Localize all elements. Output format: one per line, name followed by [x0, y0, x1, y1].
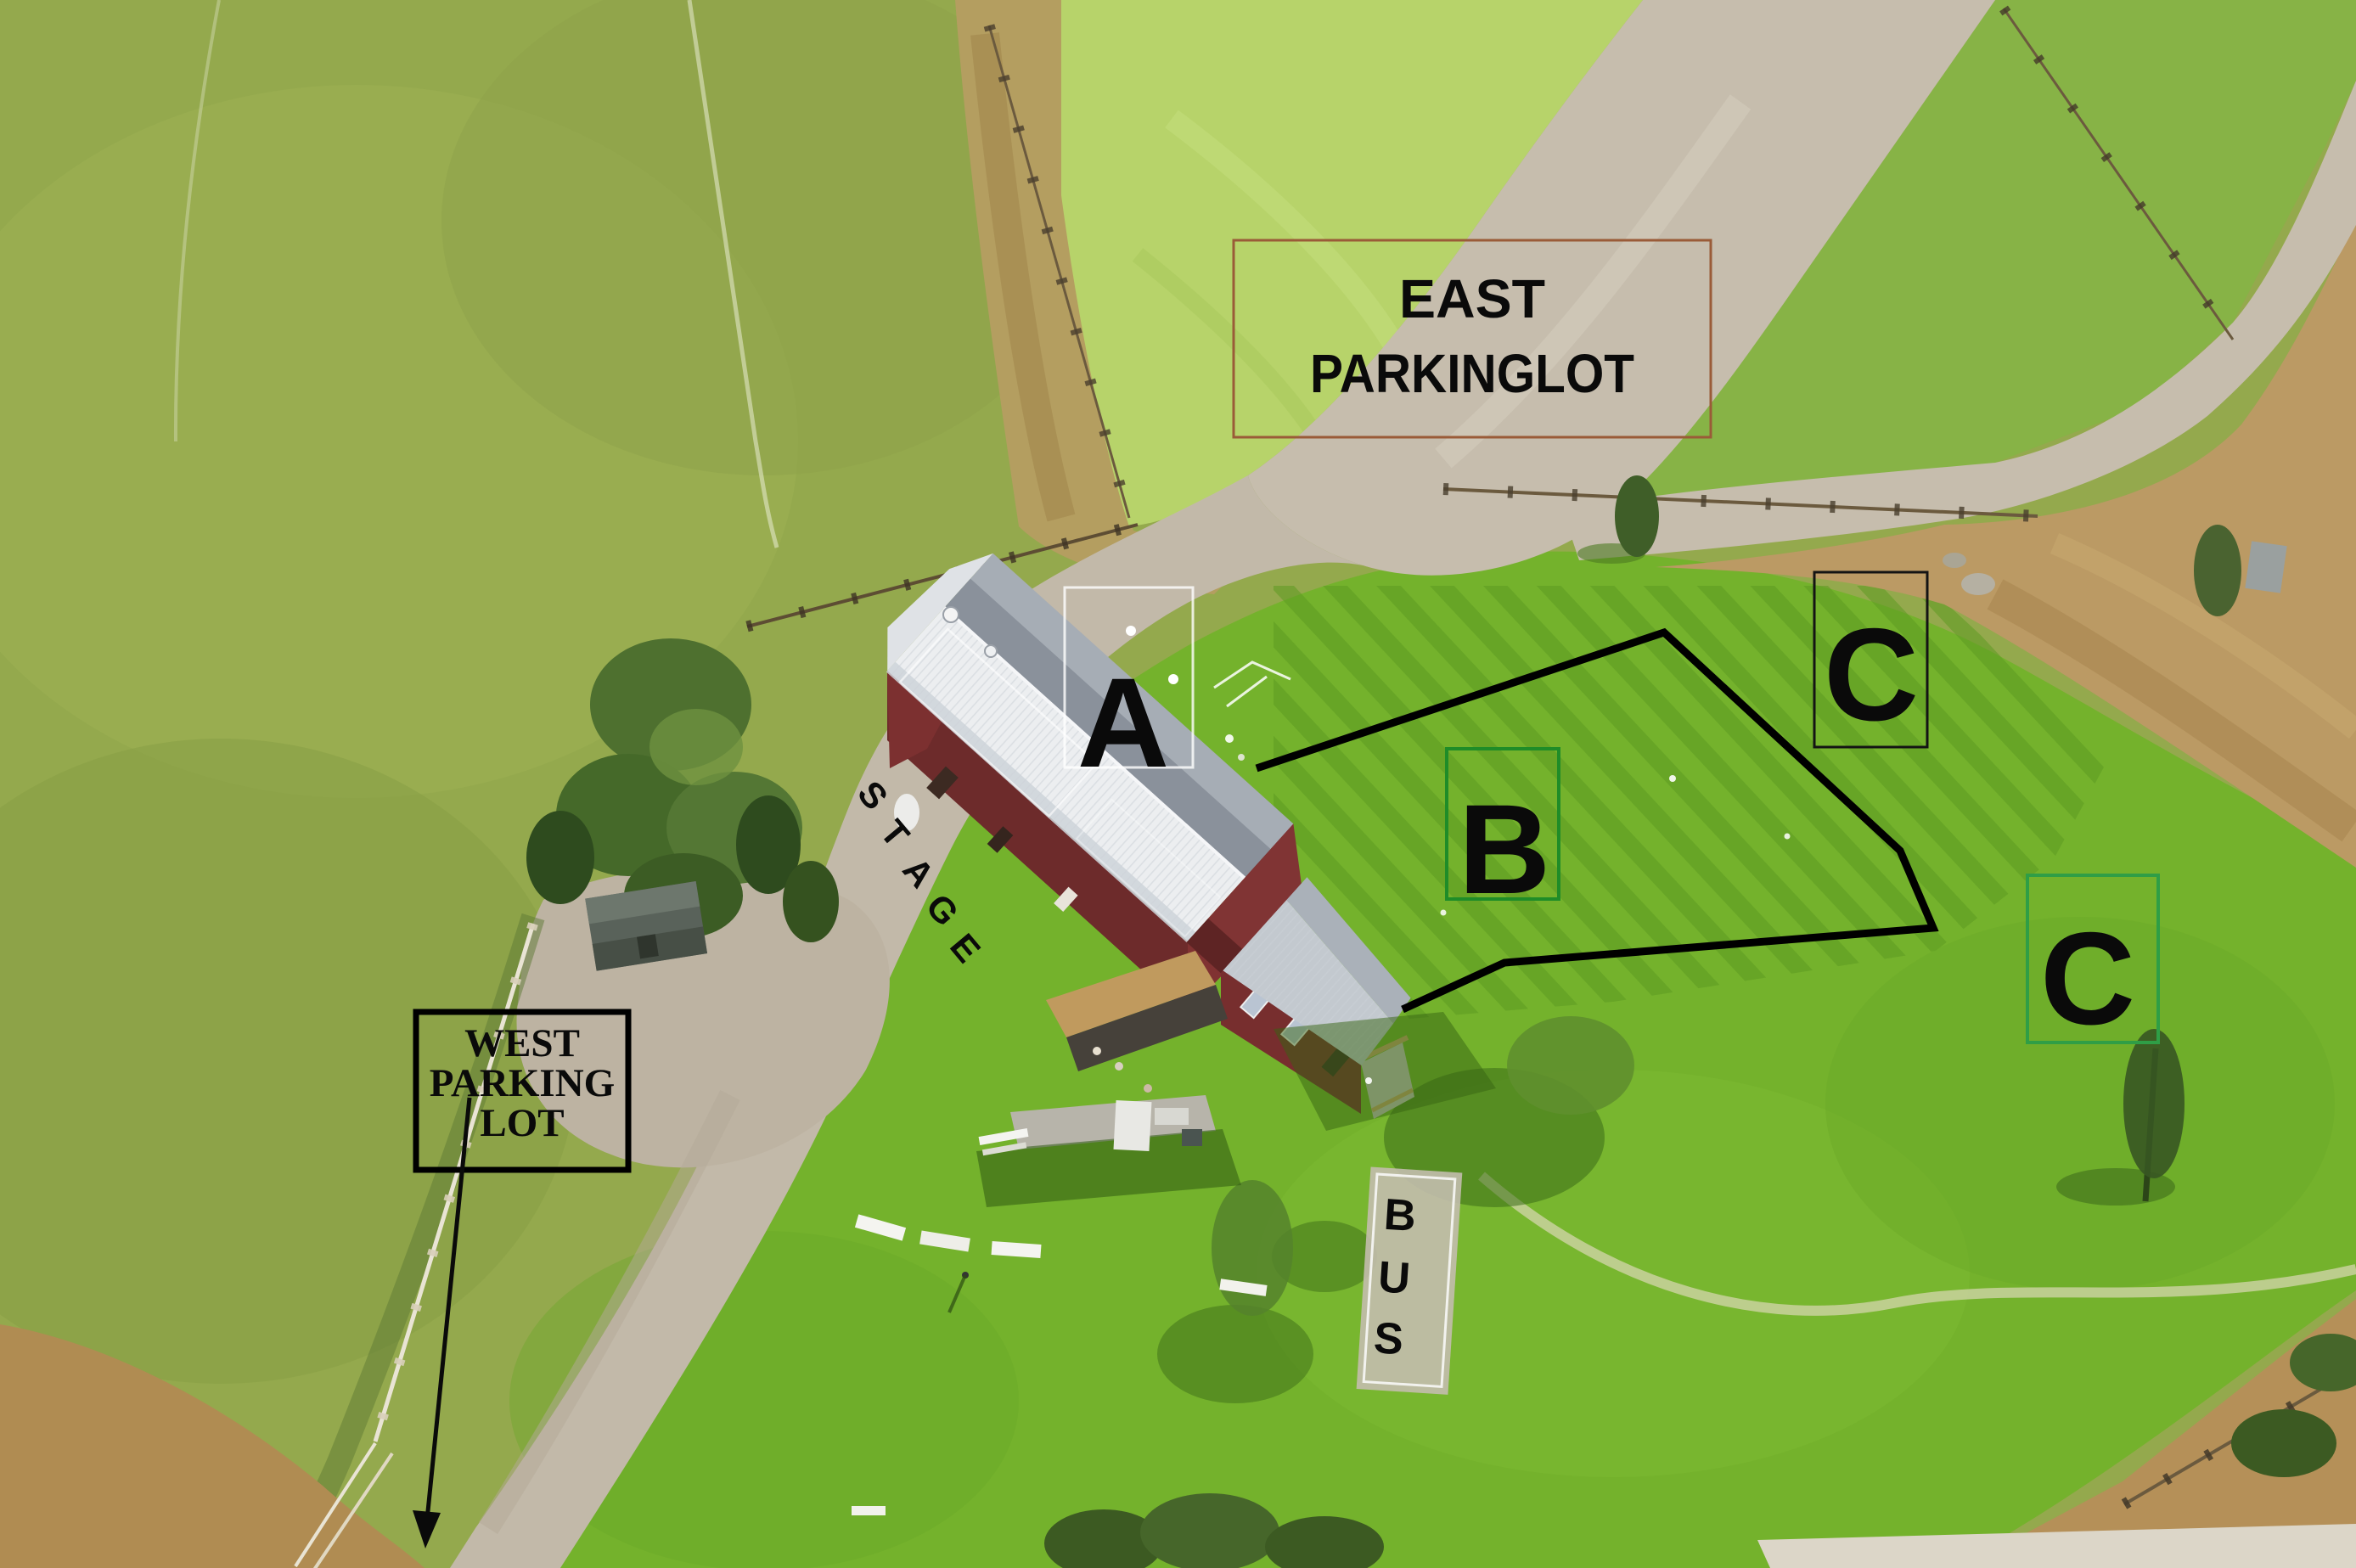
- bus-letter: S: [1372, 1313, 1404, 1364]
- section-c-upper-letter: C: [1824, 601, 1919, 748]
- bus-letter: B: [1382, 1190, 1417, 1241]
- bench: [852, 1506, 886, 1515]
- rock: [1961, 573, 1995, 595]
- cupola-vent: [985, 645, 997, 657]
- section-b-letter: B: [1459, 778, 1550, 920]
- white-grill-box: [1114, 1100, 1152, 1151]
- rock: [1943, 553, 1966, 568]
- venue-map: EAST PARKINGLOT WEST PARKING LOT S T A G…: [0, 0, 2356, 1568]
- person: [1115, 1062, 1123, 1071]
- roof-light: [1168, 674, 1178, 684]
- lawn-tree: [1212, 1180, 1293, 1316]
- west-lot-text-line2: PARKING: [430, 1061, 615, 1105]
- east-lot-text-line1: EAST: [1399, 268, 1545, 329]
- section-c-lower-letter: C: [2040, 905, 2135, 1052]
- person: [1144, 1084, 1152, 1093]
- sign-board: [2245, 541, 2286, 593]
- section-a-letter: A: [1077, 651, 1169, 794]
- dark-bin: [1182, 1129, 1202, 1146]
- conifer: [526, 811, 594, 904]
- conifer: [783, 861, 839, 942]
- bus-letter: U: [1377, 1252, 1412, 1303]
- cupola-vent: [943, 607, 959, 622]
- grill-table: [1155, 1108, 1189, 1125]
- tree-dry-slope: [2194, 525, 2241, 616]
- tree-junction: [1615, 475, 1659, 557]
- roof-light: [1126, 626, 1136, 636]
- person: [1093, 1047, 1101, 1055]
- west-lot-text-line1: WEST: [464, 1021, 580, 1065]
- east-lot-text-line2: PARKINGLOT: [1310, 343, 1634, 404]
- west-lot-text-line3: LOT: [480, 1101, 564, 1145]
- aerial-map-canvas: EAST PARKINGLOT WEST PARKING LOT S T A G…: [0, 0, 2356, 1568]
- bus-label: B U S: [1357, 1167, 1463, 1395]
